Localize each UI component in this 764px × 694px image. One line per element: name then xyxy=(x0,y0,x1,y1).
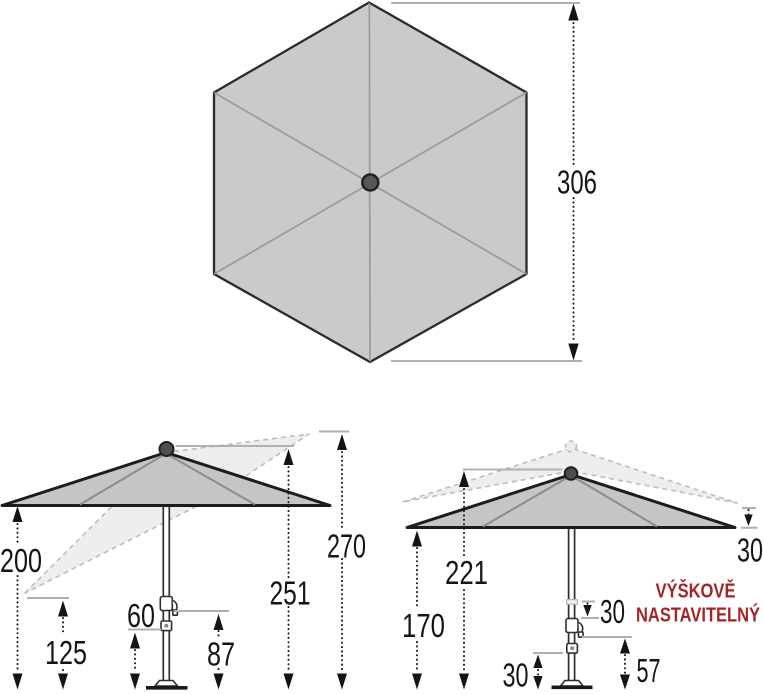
dim-label-125: 125 xyxy=(45,634,87,671)
arrowhead-up xyxy=(459,471,469,487)
umbrella-canopy xyxy=(407,475,735,528)
arrowhead-up xyxy=(412,531,422,547)
arrowhead-down xyxy=(284,674,294,690)
umbrella-dimension-diagram: 306 200 125 xyxy=(0,0,764,694)
raised-canopy-ghost-knob xyxy=(566,441,577,452)
arrowhead-up xyxy=(130,633,140,649)
pole-connector-dot xyxy=(164,624,168,628)
arrowhead-up xyxy=(284,449,294,465)
dimension-125: 125 xyxy=(45,601,87,690)
pole-slider-joint xyxy=(567,600,578,605)
canopy-top-knob xyxy=(160,442,174,456)
dimension-57: 57 xyxy=(620,639,661,690)
dim-label-251: 251 xyxy=(270,575,311,612)
arrowhead-up xyxy=(337,434,347,450)
pole-foot xyxy=(561,681,584,687)
crank-housing xyxy=(160,597,172,611)
arrowhead-down xyxy=(13,674,23,690)
dimension-251: 251 xyxy=(270,449,311,690)
dimension-30-right: 30 xyxy=(737,510,763,569)
height-adjustable-note: VÝŠKOVĚ NASTAVITELNÝ xyxy=(636,579,761,627)
arrowhead-down xyxy=(58,674,68,690)
dim-label-57: 57 xyxy=(637,652,661,689)
side-view-height-adjustable-umbrella: 221 170 30 30 57 30 xyxy=(402,441,763,694)
arrowhead-down xyxy=(337,674,347,690)
dim-label-30-right: 30 xyxy=(737,532,763,569)
dimension-30-bottom: 30 xyxy=(503,655,543,694)
arrowhead-down xyxy=(459,674,469,690)
dim-label-221: 221 xyxy=(445,554,488,591)
note-line-1: VÝŠKOVĚ xyxy=(656,579,736,603)
arrowhead-down xyxy=(744,515,752,527)
arrowhead-down xyxy=(412,674,422,690)
arrowhead-up xyxy=(13,506,23,522)
arrowhead-down xyxy=(533,676,542,690)
arrowhead-up xyxy=(568,4,578,21)
umbrella-canopy xyxy=(2,453,330,506)
dim-label-60: 60 xyxy=(127,597,155,634)
canopy-top-knob xyxy=(565,467,578,480)
pole-connector-dot xyxy=(570,646,574,650)
arrowhead-down xyxy=(620,675,630,690)
crank-housing xyxy=(566,619,578,633)
dim-label-30-mid: 30 xyxy=(600,593,625,630)
note-line-2: NASTAVITELNÝ xyxy=(636,603,761,627)
arrowhead-down xyxy=(583,605,591,617)
dimension-60: 60 xyxy=(127,597,155,690)
dim-label-270: 270 xyxy=(327,528,366,565)
dim-label-306: 306 xyxy=(557,164,597,201)
dimension-170: 170 xyxy=(402,531,445,690)
pole-foot xyxy=(155,681,178,687)
dim-label-200: 200 xyxy=(0,542,42,579)
arrowhead-up xyxy=(620,639,630,654)
dim-label-87: 87 xyxy=(207,636,235,673)
arrowhead-down xyxy=(568,344,578,361)
arrowhead-up xyxy=(58,601,68,617)
dim-label-30-bottom: 30 xyxy=(503,657,529,694)
arrowhead-up xyxy=(533,655,542,669)
side-view-tilt-umbrella: 200 125 60 87 251 xyxy=(0,432,366,690)
arrowhead-up xyxy=(214,614,224,630)
dim-label-170: 170 xyxy=(402,607,445,644)
dimension-270: 270 xyxy=(327,434,366,690)
arrowhead-down xyxy=(130,674,140,690)
dimension-30-mid: 30 xyxy=(583,593,625,630)
top-view-hexagon-umbrella: 306 xyxy=(214,3,597,363)
dimension-87: 87 xyxy=(207,614,235,690)
hexagon-center-hub xyxy=(362,175,378,191)
arrowhead-down xyxy=(214,674,224,690)
